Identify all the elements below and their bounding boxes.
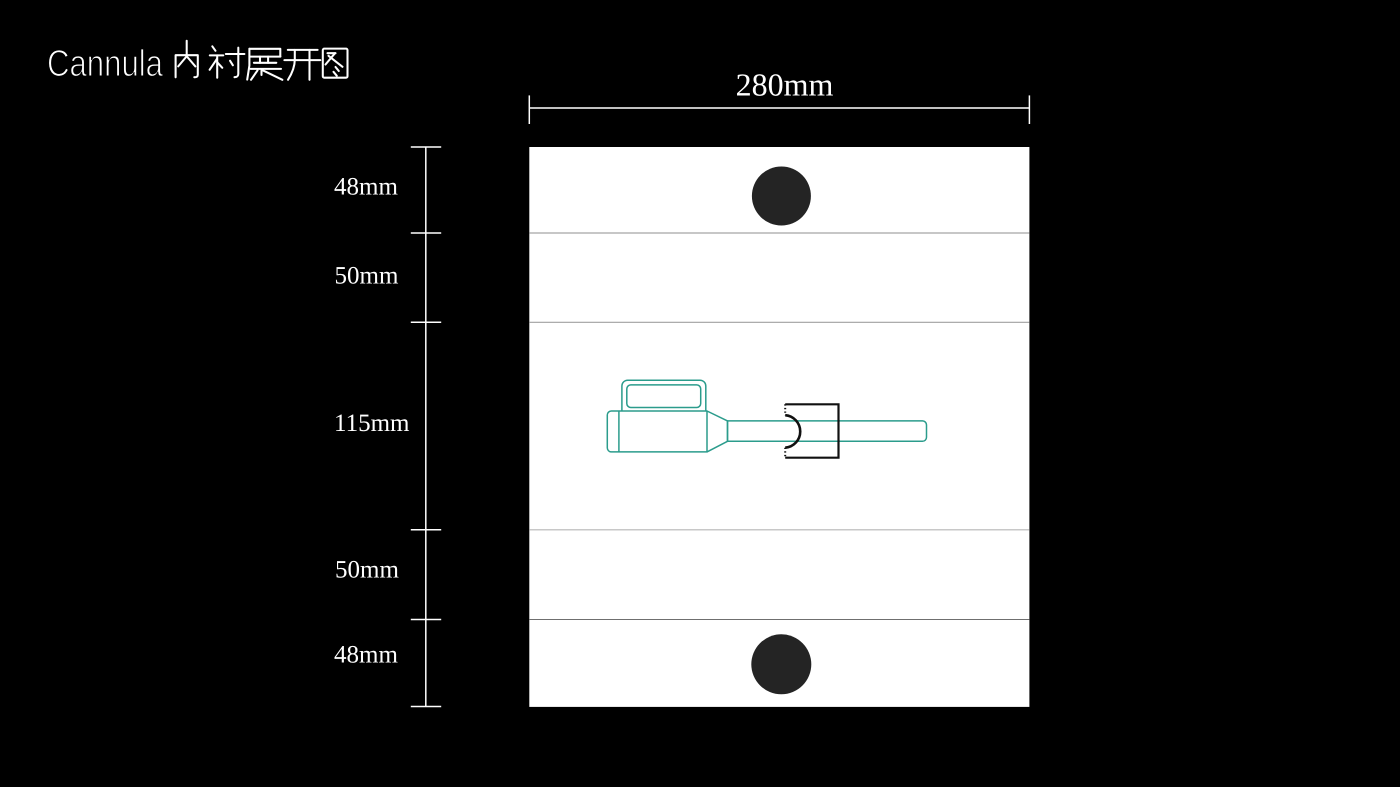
svg-text:280mm: 280mm xyxy=(736,67,834,103)
svg-text:48mm: 48mm xyxy=(334,642,398,669)
svg-text:48mm: 48mm xyxy=(334,174,398,201)
svg-text:50mm: 50mm xyxy=(335,557,399,584)
svg-text:50mm: 50mm xyxy=(335,263,399,290)
svg-text:115mm: 115mm xyxy=(334,410,410,437)
svg-text:Cannula: Cannula xyxy=(47,42,163,84)
